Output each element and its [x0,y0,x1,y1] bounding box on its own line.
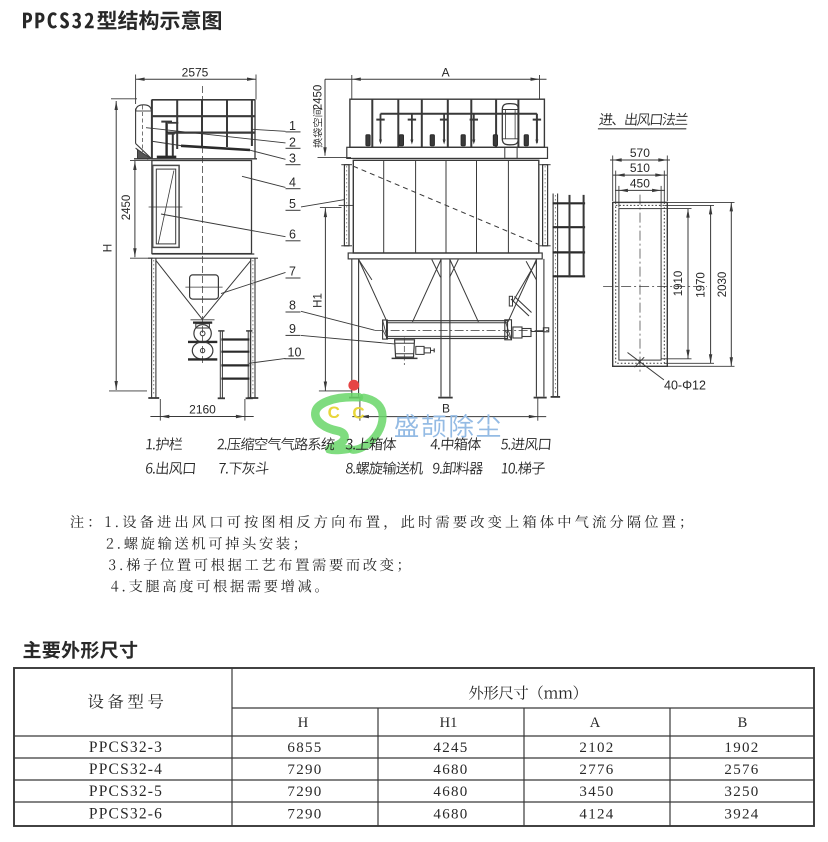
svg-text:2575: 2575 [182,66,209,80]
svg-text:7290: 7290 [287,784,322,800]
svg-text:4245: 4245 [433,740,468,756]
svg-text:4680: 4680 [433,784,468,800]
svg-text:3924: 3924 [724,806,759,822]
svg-text:1970: 1970 [696,272,708,298]
svg-text:2776: 2776 [579,762,614,778]
svg-text:7: 7 [289,265,296,279]
svg-text:4680: 4680 [433,762,468,778]
svg-text:2102: 2102 [579,740,614,756]
svg-text:A: A [590,715,601,731]
svg-text:1902: 1902 [724,740,759,756]
svg-text:PPCS32-5: PPCS32-5 [89,783,163,800]
svg-text:H: H [101,244,115,253]
svg-text:A: A [442,65,450,79]
svg-text:C: C [352,404,364,423]
svg-text:2030: 2030 [717,272,729,298]
svg-text:3250: 3250 [724,784,759,800]
svg-text:H1: H1 [440,715,458,731]
svg-text:5: 5 [289,197,296,211]
svg-text:3450: 3450 [579,784,614,800]
svg-text:B: B [738,715,748,731]
svg-text:4680: 4680 [433,806,468,822]
svg-text:H1: H1 [313,293,325,308]
svg-text:7290: 7290 [287,806,322,822]
svg-text:510: 510 [630,161,650,175]
svg-text:4: 4 [289,175,296,189]
svg-text:C: C [328,403,340,422]
svg-text:PPCS32-6: PPCS32-6 [89,805,163,822]
svg-text:1: 1 [289,119,296,133]
svg-text:6: 6 [289,227,296,241]
svg-text:2450: 2450 [121,195,133,221]
svg-text:PPCS32-4: PPCS32-4 [89,761,163,778]
svg-text:7290: 7290 [287,762,322,778]
svg-text:PPCS32-3: PPCS32-3 [89,739,163,756]
svg-text:570: 570 [630,146,650,160]
svg-text:8: 8 [289,299,296,313]
svg-text:2450: 2450 [312,85,324,111]
svg-text:4124: 4124 [579,806,614,822]
svg-text:40-Φ12: 40-Φ12 [664,379,706,393]
svg-text:450: 450 [630,176,650,190]
svg-text:H: H [298,715,309,731]
svg-text:10: 10 [288,345,302,359]
svg-text:B: B [442,401,450,415]
svg-text:9: 9 [289,322,296,336]
svg-text:1910: 1910 [673,271,685,297]
svg-text:6855: 6855 [287,740,322,756]
svg-text:2576: 2576 [724,762,759,778]
svg-text:2160: 2160 [189,403,216,417]
svg-text:2: 2 [289,135,296,149]
svg-text:3: 3 [289,152,296,166]
